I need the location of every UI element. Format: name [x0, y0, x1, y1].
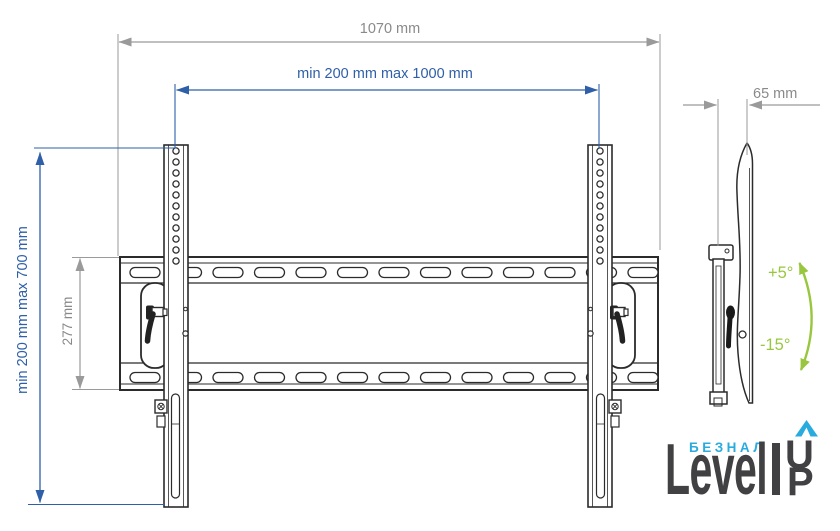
tilt-up-angle-label: +5°: [768, 264, 793, 283]
depth-dimension-label: 65 mm: [753, 86, 797, 102]
plate-height-dimension-label: 277 mm: [60, 281, 78, 361]
right-clamp-screw: [609, 400, 621, 427]
vesa-height-dimension-label: min 200 mm max 700 mm: [15, 160, 35, 460]
logo-divider-bar: [772, 443, 780, 495]
tilt-range-arrow: [800, 263, 812, 370]
total-width-dimension-label: 1070 mm: [320, 21, 460, 37]
tv-mount-spec-sheet: 1070 mm min 200 mm max 1000 mm min 200 m…: [0, 0, 840, 531]
logo-wordmark: Level: [665, 434, 767, 506]
side-view: [709, 143, 812, 406]
tilt-down-angle-label: -15°: [760, 336, 790, 355]
left-clamp-screw: [155, 400, 167, 427]
front-view: [120, 145, 658, 507]
logo-up-letter-p: P: [787, 462, 814, 502]
vesa-width-dimension-label: min 200 mm max 1000 mm: [250, 66, 520, 82]
wall-plate: [120, 257, 658, 390]
side-profile-blade: [737, 143, 753, 403]
